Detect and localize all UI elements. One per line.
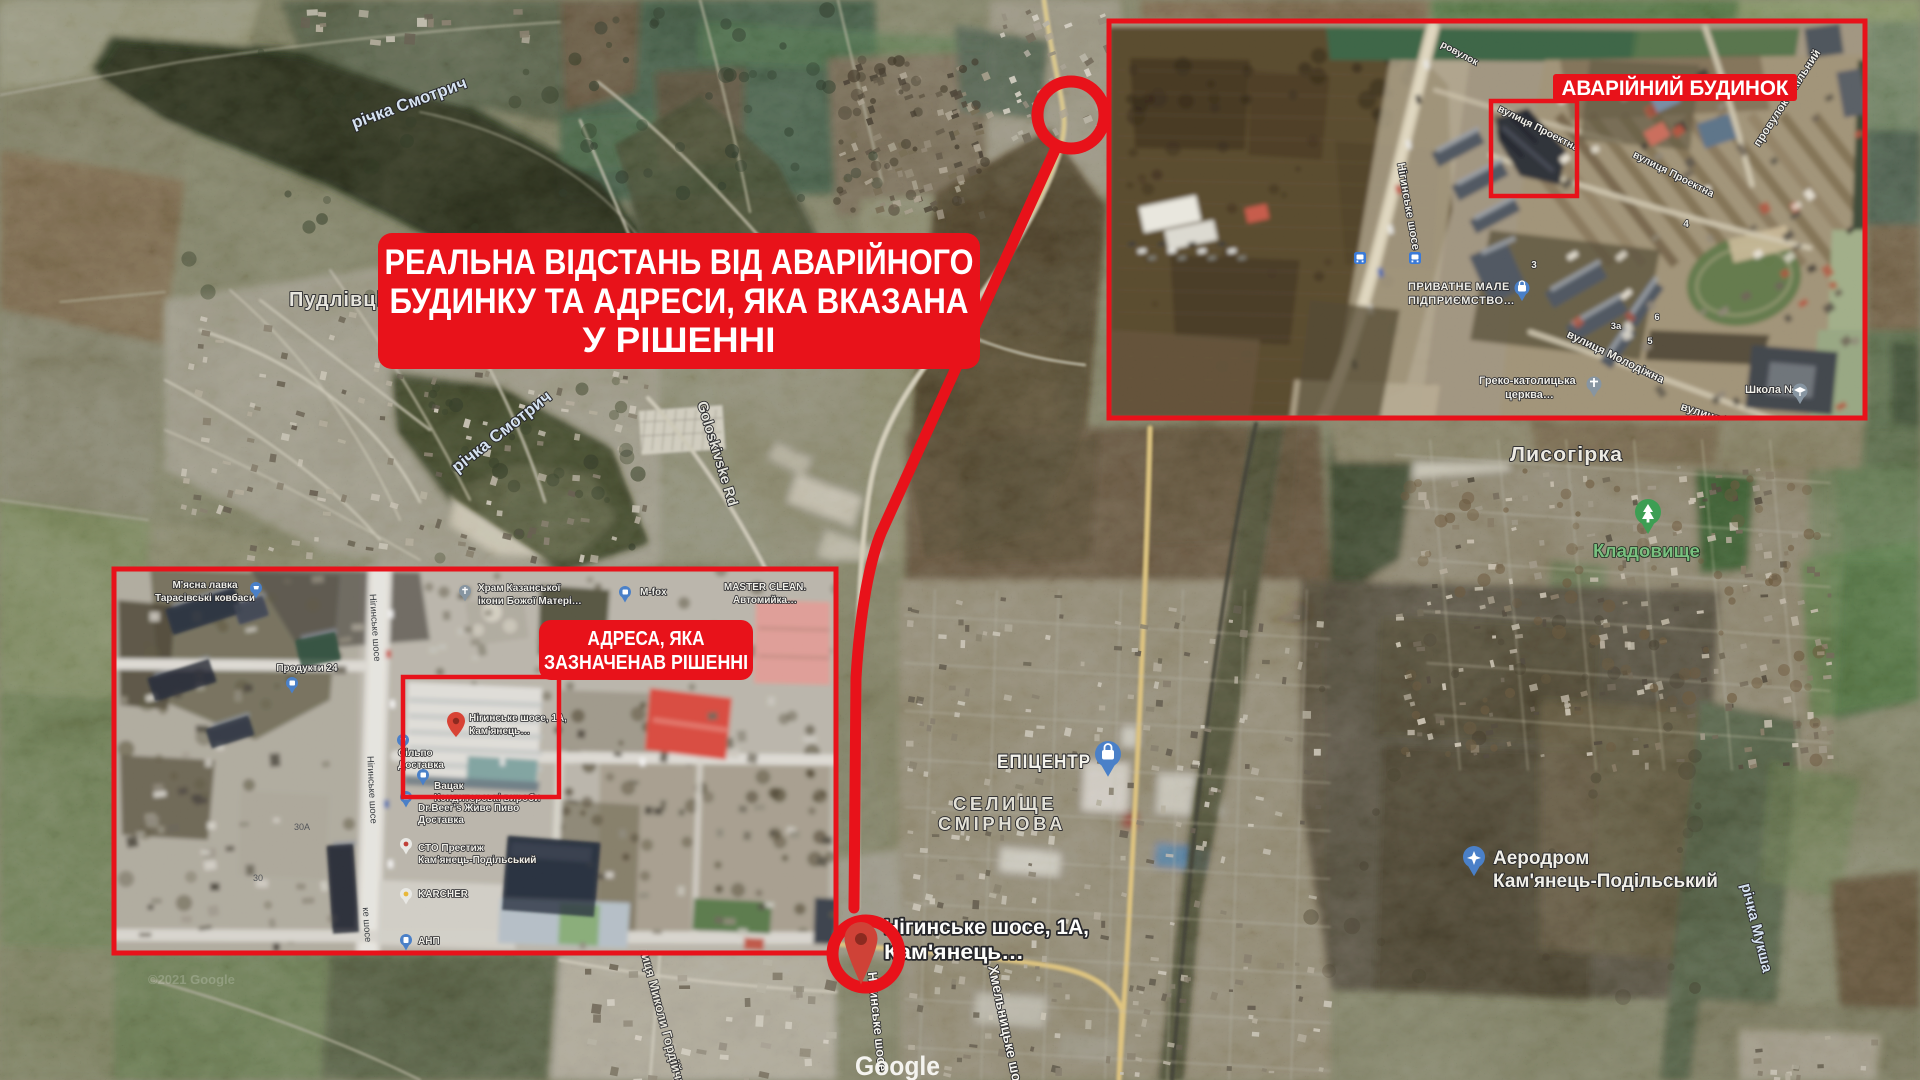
svg-text:30А: 30А — [294, 822, 310, 832]
svg-text:Доставка: Доставка — [418, 815, 464, 826]
svg-text:Аеродром: Аеродром — [1493, 848, 1589, 869]
svg-text:3а: 3а — [1611, 321, 1622, 332]
svg-text:Google: Google — [855, 1051, 940, 1080]
svg-text:KARCHER: KARCHER — [418, 889, 469, 900]
svg-text:ікони Божої Матері…: ікони Божої Матері… — [478, 596, 582, 607]
svg-text:ПРИВАТНЕ МАЛЕ: ПРИВАТНЕ МАЛЕ — [1408, 281, 1510, 293]
svg-text:СЕЛИЩЕ: СЕЛИЩЕ — [953, 794, 1057, 814]
svg-text:Лисогірка: Лисогірка — [1510, 444, 1623, 466]
svg-text:Пудлівці: Пудлівці — [289, 289, 383, 311]
svg-text:У РІШЕННІ: У РІШЕННІ — [583, 321, 776, 360]
svg-text:СМІРНОВА: СМІРНОВА — [938, 814, 1066, 834]
svg-text:Кам'янець-Подільський: Кам'янець-Подільський — [418, 855, 536, 866]
svg-text:ЗАЗНАЧЕНАВ РІШЕННІ: ЗАЗНАЧЕНАВ РІШЕННІ — [544, 651, 748, 674]
svg-text:М'ясна лавка: М'ясна лавка — [172, 580, 238, 591]
svg-text:СТО Престиж: СТО Престиж — [418, 843, 485, 854]
svg-text:30: 30 — [253, 873, 263, 883]
svg-text:5: 5 — [1647, 336, 1653, 347]
svg-text:БУДИНКУ ТА АДРЕСИ, ЯКА ВКАЗАНА: БУДИНКУ ТА АДРЕСИ, ЯКА ВКАЗАНА — [390, 282, 969, 321]
svg-text:M-fox: M-fox — [640, 587, 667, 598]
svg-text:Греко-католицька: Греко-католицька — [1479, 375, 1576, 387]
svg-text:Продукти 24: Продукти 24 — [276, 663, 338, 674]
svg-text:Кам'янець-Подільський: Кам'янець-Подільський — [1493, 871, 1718, 892]
svg-text:АДРЕСА, ЯКА: АДРЕСА, ЯКА — [588, 627, 705, 650]
svg-text:Нігинське шосе, 1А,: Нігинське шосе, 1А, — [884, 916, 1089, 939]
svg-text:Автомийка…: Автомийка… — [733, 595, 797, 606]
svg-text:©2021 Google: ©2021 Google — [148, 972, 235, 987]
svg-text:АНП: АНП — [418, 936, 440, 947]
svg-text:Кладовище: Кладовище — [1593, 541, 1700, 561]
svg-text:ПІДПРИЄМСТВО…: ПІДПРИЄМСТВО… — [1408, 295, 1515, 307]
svg-text:РЕАЛЬНА ВІДСТАНЬ ВІД АВАРІЙНОГ: РЕАЛЬНА ВІДСТАНЬ ВІД АВАРІЙНОГО — [385, 242, 974, 282]
svg-text:ЕПІЦЕНТР: ЕПІЦЕНТР — [997, 752, 1091, 773]
svg-text:Нігинське шосе, 1А,: Нігинське шосе, 1А, — [469, 713, 567, 724]
svg-text:4: 4 — [1683, 219, 1689, 230]
svg-text:6: 6 — [1654, 312, 1659, 323]
svg-text:Храм Казанської: Храм Казанської — [478, 583, 561, 594]
svg-text:АВАРІЙНИЙ БУДИНОК: АВАРІЙНИЙ БУДИНОК — [1562, 75, 1790, 100]
svg-text:церква…: церква… — [1505, 389, 1554, 401]
svg-text:3: 3 — [1531, 260, 1537, 271]
svg-text:Кам'янець…: Кам'янець… — [469, 726, 530, 737]
svg-text:Dr.Beer's Живе Пиво: Dr.Beer's Живе Пиво — [418, 803, 519, 814]
svg-text:Вацак: Вацак — [434, 781, 465, 792]
svg-text:MASTER CLEAN.: MASTER CLEAN. — [724, 582, 806, 593]
svg-text:Тарасівські ковбаси: Тарасівські ковбаси — [155, 592, 255, 604]
